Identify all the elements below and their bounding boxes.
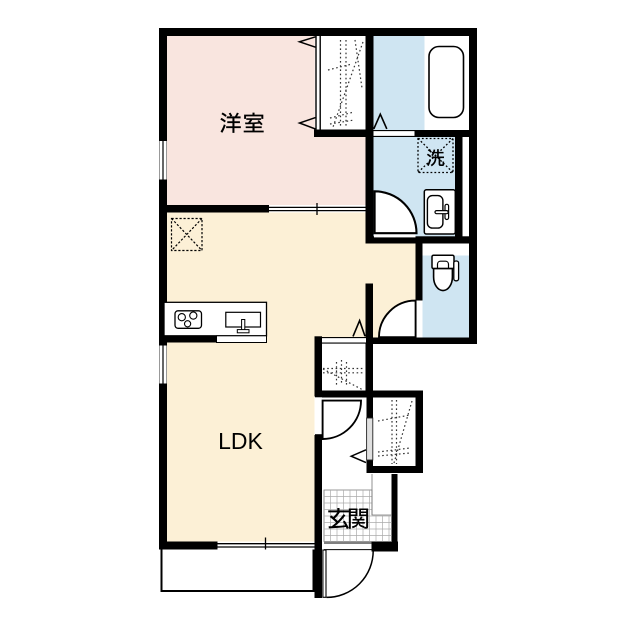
svg-text:LDK: LDK bbox=[218, 428, 263, 454]
